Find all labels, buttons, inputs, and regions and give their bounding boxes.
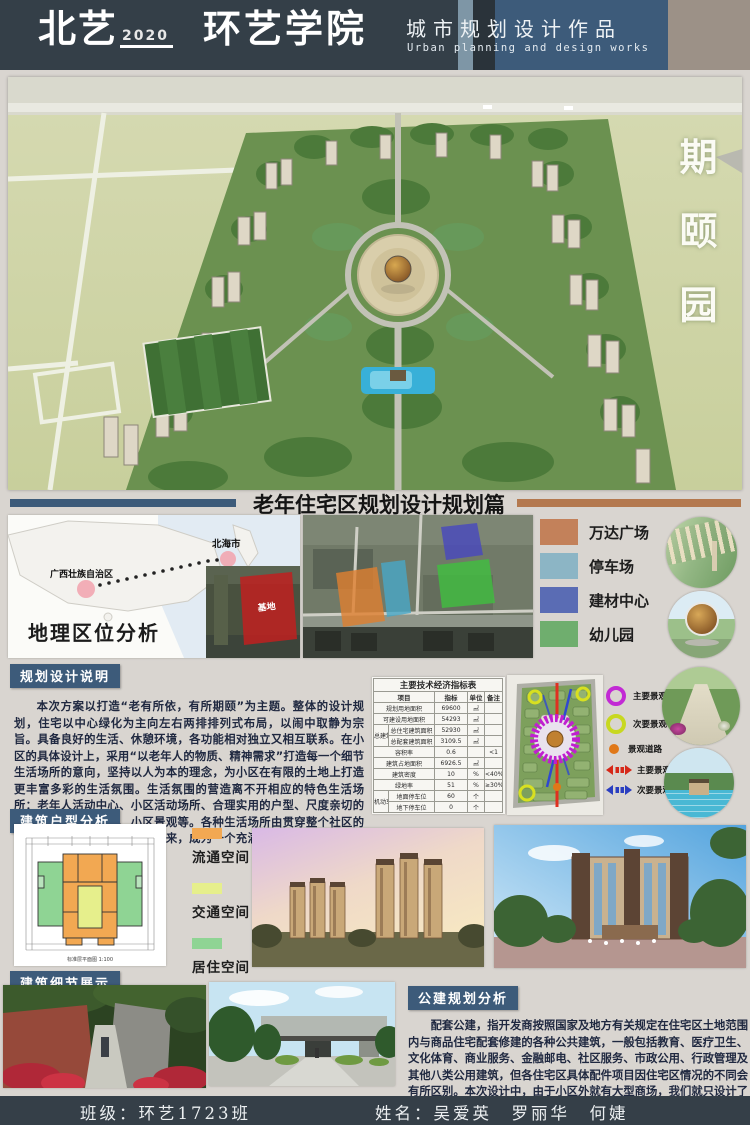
dot-icon xyxy=(609,744,619,754)
work-title-cn: 城市规划设计作品 xyxy=(406,13,622,42)
entrance-photo-svg xyxy=(209,982,395,1086)
table-note-cell xyxy=(485,736,503,747)
table-row: 可建设用地面积54293㎡ xyxy=(374,714,503,725)
work-title-en: Urban planning and design works xyxy=(407,42,649,54)
legend-color-swatch xyxy=(540,519,578,545)
legend-label: 停车场 xyxy=(589,556,634,577)
table-unit-cell: ㎡ xyxy=(468,714,485,725)
landuse-satellite-map xyxy=(303,515,533,658)
sphere-sculpture xyxy=(385,256,411,282)
day-building xyxy=(572,849,688,939)
building-render-day xyxy=(494,825,746,968)
province-label: 广西壮族自治区 xyxy=(50,568,113,580)
table-item-cell: 地面停车位 xyxy=(389,791,435,802)
logo-year-text: 2020 xyxy=(120,28,173,48)
table-header-cell: 备注 xyxy=(485,692,503,703)
masterplan-svg xyxy=(507,675,603,815)
table-item-cell: 容积率 xyxy=(374,747,435,758)
table-unit-cell: ㎡ xyxy=(468,736,485,747)
sphere-base xyxy=(685,639,719,646)
table-note-cell: <1 xyxy=(485,747,503,758)
legend-label: 万达广场 xyxy=(589,522,649,543)
legend-color-swatch xyxy=(540,587,578,613)
masterplan-diagram xyxy=(507,675,603,815)
site-satellite-inset: 基地 xyxy=(206,566,300,658)
table-unit-cell: ㎡ xyxy=(468,758,485,769)
table-title-row: 主要技术经济指标表 xyxy=(374,679,503,692)
ring-icon xyxy=(606,714,626,734)
table-row: 建筑占地面积6926.5㎡ xyxy=(374,758,503,769)
logo-secondary-text: 环艺学院 xyxy=(203,10,367,48)
table-item-cell: 建筑占地面积 xyxy=(374,758,435,769)
table-value-cell: 54293 xyxy=(435,714,468,725)
logo-primary-text: 北艺 xyxy=(38,10,118,48)
table-item-cell: 规划用地面积 xyxy=(374,703,435,714)
indicators-table-body: 规划用地面积69600㎡可建设用地面积54293㎡总建筑面积总住宅建筑面积529… xyxy=(374,703,503,813)
table-value-cell: 6926.5 xyxy=(435,758,468,769)
project-name-vertical: 期颐园 xyxy=(668,137,723,359)
satellite-svg xyxy=(303,515,533,658)
table-note-cell: <40% xyxy=(485,769,503,780)
city-marker xyxy=(220,551,236,567)
living-space-right xyxy=(117,862,142,926)
table-unit-cell: % xyxy=(468,780,485,791)
render-day-svg xyxy=(494,825,746,968)
table-value-cell: 51 xyxy=(435,780,468,791)
render-sunset-svg xyxy=(252,828,484,967)
land-use-legend-item: 万达广场 xyxy=(540,519,660,545)
footer-banner: 班级：环艺1723班 姓名：吴爱英 罗丽华 何婕 xyxy=(0,1096,750,1125)
legend-color-swatch xyxy=(540,621,578,647)
person-figure xyxy=(101,1037,109,1057)
table-row: 容积率0.6<1 xyxy=(374,747,503,758)
table-header-row: 项目指标单位备注 xyxy=(374,692,503,703)
table-item-cell: 地下停车位 xyxy=(389,802,435,813)
legend-color-swatch xyxy=(540,553,578,579)
legend-label: 幼儿园 xyxy=(589,624,634,645)
floor-plan-caption: 标准层平面图 1:100 xyxy=(14,956,166,963)
land-use-legend: 万达广场停车场建材中心幼儿园 xyxy=(540,519,660,655)
building-render-sunset xyxy=(252,828,484,967)
pool-vignette xyxy=(664,748,734,818)
aerial-render-svg xyxy=(8,77,742,490)
soccer-field xyxy=(143,327,270,417)
footer-names: 姓名：吴爱英 罗丽华 何婕 xyxy=(375,1100,629,1124)
table-unit-cell: 个 xyxy=(468,802,485,813)
table-note-cell: ≥30% xyxy=(485,780,503,791)
axis-arrow-icon xyxy=(606,765,632,775)
table-unit-cell: 个 xyxy=(468,791,485,802)
detail-photo-passage xyxy=(3,985,206,1088)
table-header-cell: 项目 xyxy=(374,692,435,703)
title-bar-right xyxy=(517,499,741,507)
table-header-cell: 单位 xyxy=(468,692,485,703)
land-use-legend-item: 建材中心 xyxy=(540,587,660,613)
table-row: 总配套建筑面积3109.5㎡ xyxy=(374,736,503,747)
landscape-pool xyxy=(361,367,435,394)
floor-plan-svg xyxy=(14,824,166,966)
table-unit-cell: ㎡ xyxy=(468,725,485,736)
province-marker xyxy=(77,580,95,598)
overlay-wanda-plaza xyxy=(336,567,385,627)
title-bar-left xyxy=(10,499,236,507)
table-value-cell: 69600 xyxy=(435,703,468,714)
overlay-kindergarten xyxy=(437,559,495,608)
table-unit-cell: ㎡ xyxy=(468,703,485,714)
legend-color-swatch xyxy=(192,883,222,894)
table-value-cell: 10 xyxy=(435,769,468,780)
living-space-left xyxy=(38,862,63,926)
legend-label: 次要景观 xyxy=(633,718,667,730)
wicker-sphere xyxy=(685,602,719,636)
table-note-cell xyxy=(485,703,503,714)
poster-root: 北艺 2020 环艺学院 城市规划设计作品 Urban planning and… xyxy=(0,0,750,1125)
flower-bed xyxy=(670,723,686,735)
indicators-table: 主要技术经济指标表项目指标单位备注 规划用地面积69600㎡可建设用地面积542… xyxy=(373,678,503,813)
sphere-sculpture-vignette xyxy=(668,591,735,658)
table-item-cell: 建筑密度 xyxy=(374,769,435,780)
table-row: 地下停车位0个 xyxy=(374,802,503,813)
table-note-cell xyxy=(485,758,503,769)
city-label: 北海市 xyxy=(212,538,241,550)
section-badge-public-building: 公建规划分析 xyxy=(408,986,518,1010)
pool-pavilion xyxy=(689,779,709,795)
school-logo: 北艺 2020 环艺学院 xyxy=(38,10,367,48)
central-plaza xyxy=(358,235,438,315)
table-row: 规划用地面积69600㎡ xyxy=(374,703,503,714)
person-figure xyxy=(315,1048,319,1058)
floor-plan-panel: 标准层平面图 1:100 xyxy=(14,824,166,966)
masterplan-aerial-render: 期颐园 xyxy=(8,77,742,490)
table-header-cell: 指标 xyxy=(435,692,468,703)
header-stripe-taupe xyxy=(668,0,750,70)
axis-arrow-icon xyxy=(606,785,632,795)
location-map-panel: 广西壮族自治区 北海市 基地 地理区位分析 xyxy=(8,515,300,658)
table-unit-cell xyxy=(468,747,485,758)
table-row: 绿地率51%≥30% xyxy=(374,780,503,791)
table-note-cell xyxy=(485,791,503,802)
table-value-cell: 60 xyxy=(435,791,468,802)
traffic-core xyxy=(78,886,102,928)
legend-label: 景观道路 xyxy=(628,743,662,755)
detail-photo-entrance xyxy=(209,982,395,1086)
table-item-cell: 可建设用地面积 xyxy=(374,714,435,725)
overlay-building-materials xyxy=(441,523,483,560)
table-value-cell: 52930 xyxy=(435,725,468,736)
table-note-cell xyxy=(485,714,503,725)
pergola-vignette xyxy=(666,517,737,588)
pool-ripples xyxy=(664,793,734,818)
table-group-cell: 机动车停车位 xyxy=(374,791,389,813)
table-row: 总建筑面积总住宅建筑面积52930㎡ xyxy=(374,725,503,736)
pergola-post xyxy=(712,541,717,571)
ring-icon xyxy=(606,686,626,706)
table-note-cell xyxy=(485,802,503,813)
table-note-cell xyxy=(485,725,503,736)
legend-color-swatch xyxy=(192,828,222,839)
table-group-cell: 总建筑面积 xyxy=(374,725,389,747)
flower-bed xyxy=(718,721,730,731)
land-use-legend-item: 幼儿园 xyxy=(540,621,660,647)
table-value-cell: 0 xyxy=(435,802,468,813)
location-analysis-title: 地理区位分析 xyxy=(28,617,160,646)
footer-class: 班级：环艺1723班 xyxy=(80,1100,251,1124)
table-title: 主要技术经济指标表 xyxy=(374,679,503,692)
garden-path-vignette xyxy=(662,667,740,745)
indicators-table-head: 主要技术经济指标表项目指标单位备注 xyxy=(374,679,503,703)
table-row: 建筑密度10%<40% xyxy=(374,769,503,780)
table-item-cell: 总配套建筑面积 xyxy=(389,736,435,747)
table-row: 机动车停车位地面停车位60个 xyxy=(374,791,503,802)
table-item-cell: 总住宅建筑面积 xyxy=(389,725,435,736)
land-use-legend-item: 停车场 xyxy=(540,553,660,579)
header-banner: 北艺 2020 环艺学院 城市规划设计作品 Urban planning and… xyxy=(0,0,750,70)
table-value-cell: 3109.5 xyxy=(435,736,468,747)
legend-label: 建材中心 xyxy=(589,590,649,611)
table-item-cell: 绿地率 xyxy=(374,780,435,791)
legend-color-swatch xyxy=(192,938,222,949)
table-unit-cell: % xyxy=(468,769,485,780)
table-value-cell: 0.6 xyxy=(435,747,468,758)
passage-photo-svg xyxy=(3,985,206,1088)
indicators-table-panel: 主要技术经济指标表项目指标单位备注 规划用地面积69600㎡可建设用地面积542… xyxy=(372,677,505,814)
pergola-beams xyxy=(666,517,737,567)
section-badge-planning: 规划设计说明 xyxy=(10,664,120,688)
